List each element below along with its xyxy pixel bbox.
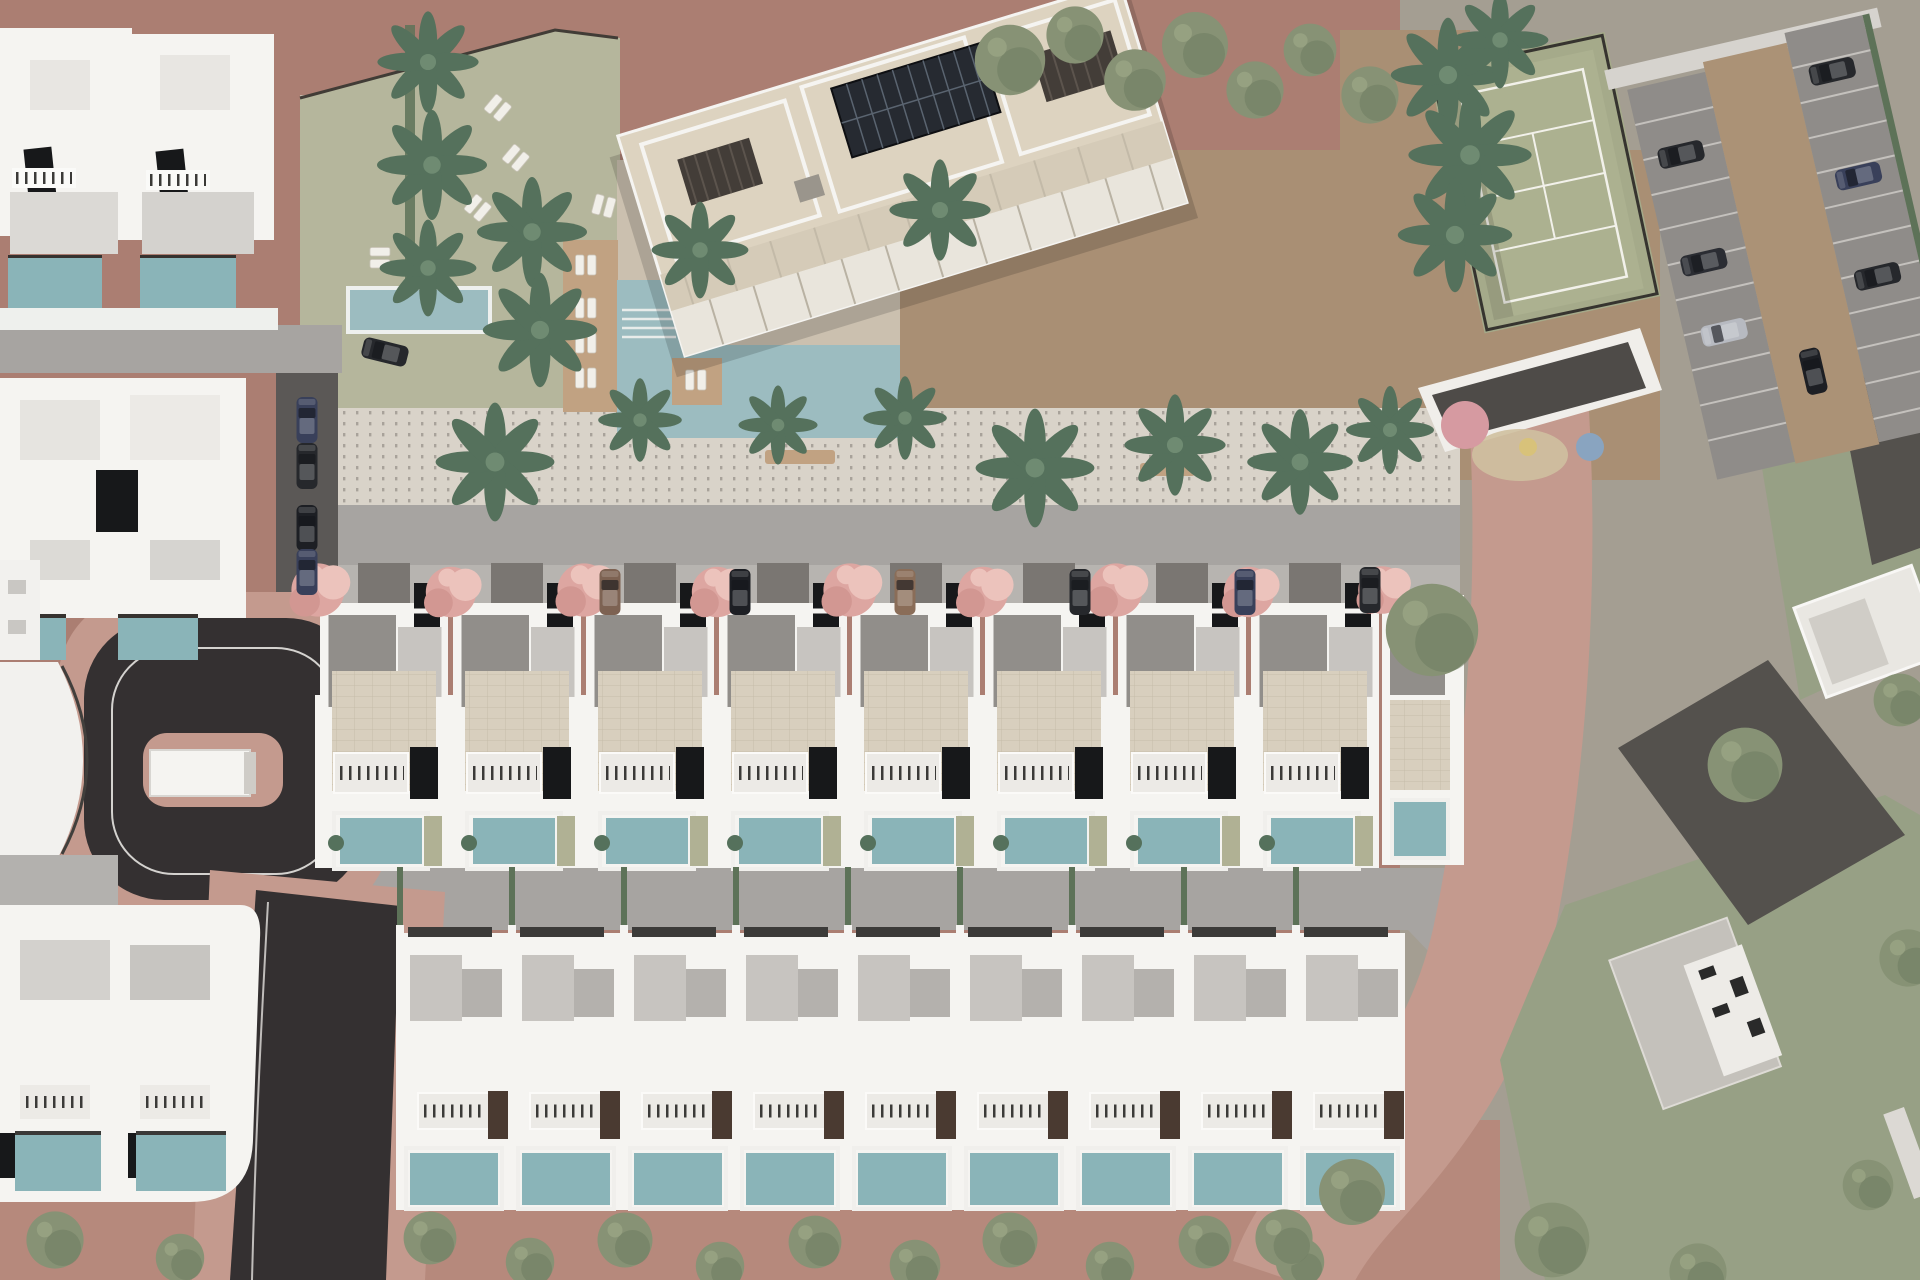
car-icon xyxy=(600,569,621,615)
car-icon xyxy=(1360,567,1381,613)
existing-villas-southwest xyxy=(0,905,260,1202)
olive-tree-icon xyxy=(1341,66,1398,123)
palm-tree-icon xyxy=(377,11,478,112)
olive-tree-icon xyxy=(598,1213,653,1268)
palm-tree-icon xyxy=(889,159,990,260)
olive-tree-icon xyxy=(1179,1216,1232,1269)
palm-tree-icon xyxy=(1346,386,1434,474)
olive-tree-icon xyxy=(1843,1160,1894,1211)
palm-tree-icon xyxy=(738,385,817,464)
palm-tree-icon xyxy=(1398,178,1512,292)
car-icon xyxy=(1070,569,1091,615)
palm-tree-icon xyxy=(598,378,682,462)
palm-tree-icon xyxy=(1247,409,1353,515)
palm-tree-icon xyxy=(477,177,587,287)
palm-tree-icon xyxy=(436,403,555,522)
site-plan-render xyxy=(0,0,1920,1280)
car-icon xyxy=(297,505,318,551)
villa-pool xyxy=(8,258,102,308)
olive-tree-icon xyxy=(404,1212,457,1265)
olive-tree-icon xyxy=(1284,24,1337,77)
car-icon xyxy=(297,443,318,489)
playground-circle-blue xyxy=(1576,433,1604,461)
olive-tree-icon xyxy=(1226,61,1283,118)
playground-circle-yellow xyxy=(1519,438,1537,456)
palm-tree-icon xyxy=(652,202,749,299)
villa-pool xyxy=(136,1135,226,1191)
playground-circle-pink xyxy=(1441,401,1489,449)
palm-tree-icon xyxy=(483,273,597,387)
olive-tree-icon xyxy=(1255,1209,1312,1266)
palm-tree-icon xyxy=(380,220,477,317)
street-north xyxy=(300,505,1460,565)
olive-tree-icon xyxy=(1046,6,1103,63)
olive-tree-icon xyxy=(1515,1203,1590,1278)
palm-tree-icon xyxy=(976,409,1095,528)
olive-tree-icon xyxy=(1104,49,1166,111)
car-icon xyxy=(297,549,318,595)
townhouse-row-middle xyxy=(315,563,1464,869)
olive-tree-icon xyxy=(975,25,1045,95)
street-planting-and-cars xyxy=(290,563,1411,617)
olive-tree-icon xyxy=(1708,728,1783,803)
palm-tree-icon xyxy=(377,110,487,220)
olive-tree-icon xyxy=(1386,584,1478,676)
olive-tree-icon xyxy=(26,1211,83,1268)
villa-pool xyxy=(15,1135,101,1191)
olive-tree-icon xyxy=(789,1216,842,1269)
villa-pool xyxy=(118,618,198,660)
car-icon xyxy=(297,397,318,443)
road-west-horizontal xyxy=(0,325,342,373)
island-building xyxy=(150,750,256,796)
site-plan-svg xyxy=(0,0,1920,1280)
car-icon xyxy=(895,569,916,615)
olive-tree-icon xyxy=(156,1234,204,1280)
palm-tree-icon xyxy=(1124,394,1225,495)
car-icon xyxy=(730,569,751,615)
olive-tree-icon xyxy=(1319,1159,1385,1225)
olive-tree-icon xyxy=(1162,12,1228,78)
car-icon xyxy=(1235,569,1256,615)
olive-tree-icon xyxy=(983,1213,1038,1268)
palm-tree-icon xyxy=(863,376,947,460)
small-pool xyxy=(348,288,490,332)
villa-pool xyxy=(140,258,236,308)
